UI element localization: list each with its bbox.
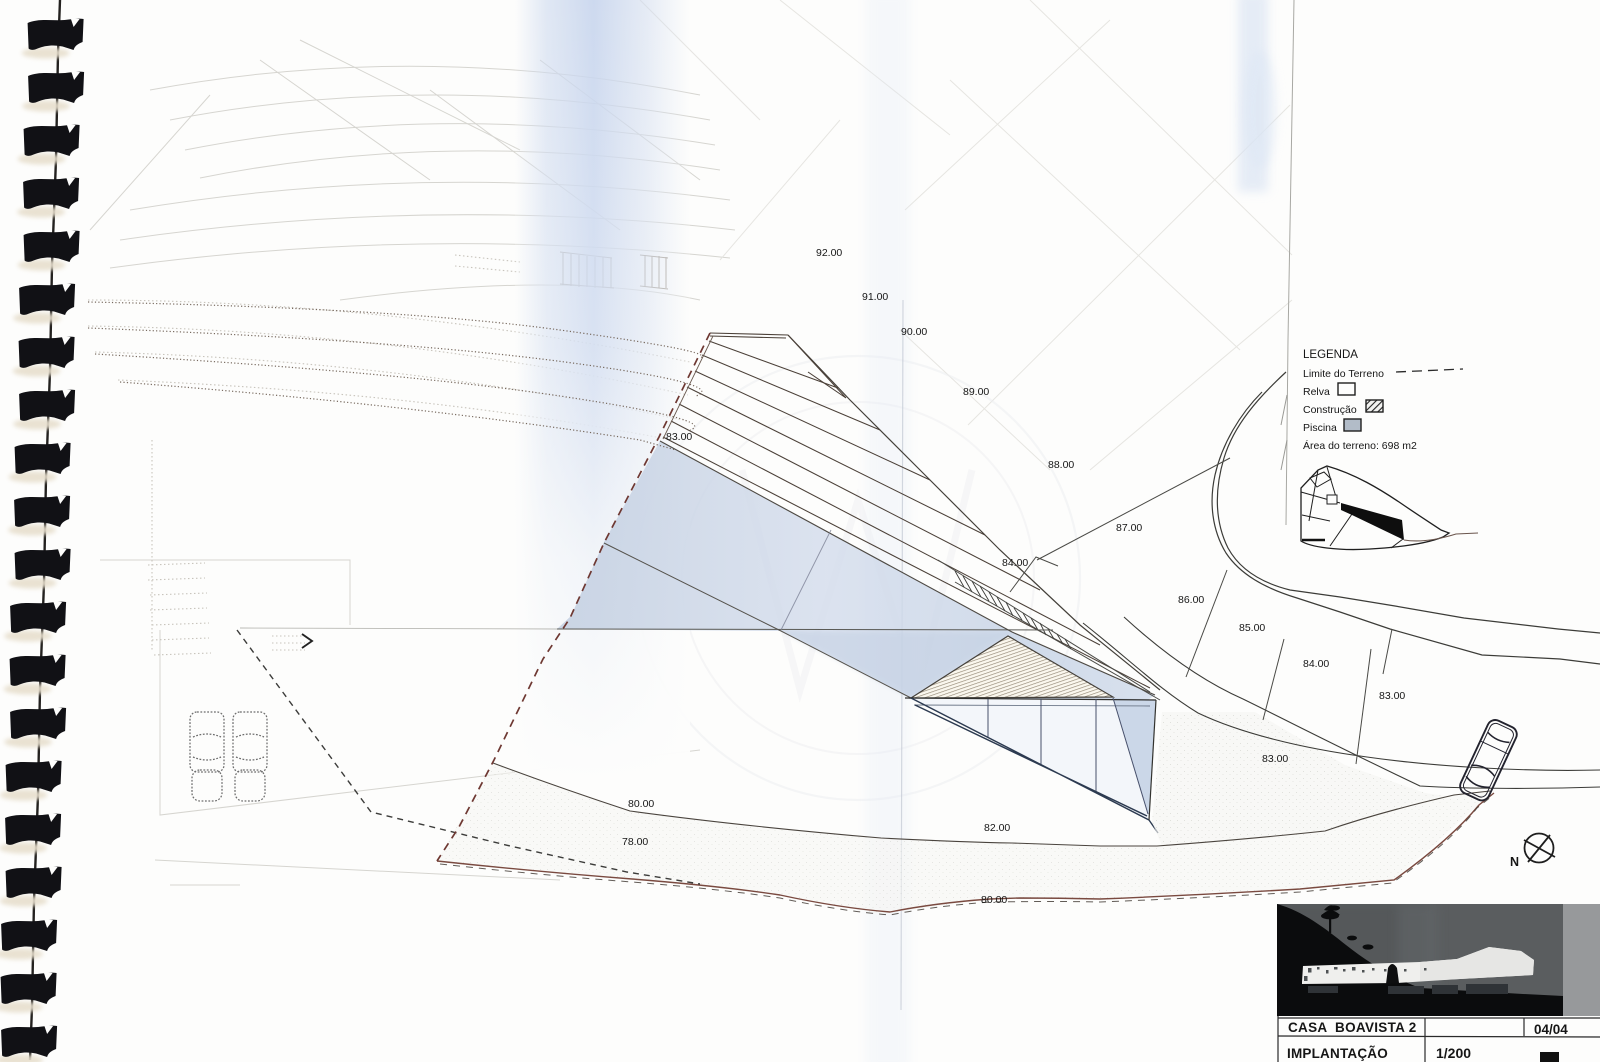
svg-text:LEGENDA: LEGENDA bbox=[1303, 349, 1358, 361]
svg-text:88.00: 88.00 bbox=[1048, 459, 1074, 471]
svg-text:04/04: 04/04 bbox=[1534, 1022, 1568, 1037]
svg-text:89.00: 89.00 bbox=[963, 386, 989, 398]
svg-text:84.00: 84.00 bbox=[1002, 557, 1028, 569]
svg-text:IMPLANTAÇÃO: IMPLANTAÇÃO bbox=[1287, 1046, 1388, 1061]
svg-text:Construção: Construção bbox=[1303, 404, 1357, 416]
svg-text:78.00: 78.00 bbox=[622, 836, 648, 848]
svg-text:Relva: Relva bbox=[1303, 386, 1330, 398]
svg-text:N: N bbox=[1510, 855, 1519, 869]
svg-text:87.00: 87.00 bbox=[1116, 522, 1142, 534]
svg-text:CASA BOAVISTA 2: CASA BOAVISTA 2 bbox=[1288, 1020, 1417, 1035]
svg-text:Área do terreno: 698 m2: Área do terreno: 698 m2 bbox=[1303, 439, 1417, 452]
svg-text:82.00: 82.00 bbox=[984, 822, 1010, 834]
svg-text:80.00: 80.00 bbox=[981, 894, 1007, 906]
svg-text:86.00: 86.00 bbox=[1178, 594, 1204, 606]
svg-text:1/200: 1/200 bbox=[1436, 1045, 1471, 1061]
svg-text:80.00: 80.00 bbox=[628, 798, 654, 810]
svg-text:83.00: 83.00 bbox=[1262, 753, 1288, 765]
svg-text:90.00: 90.00 bbox=[901, 326, 927, 338]
svg-text:83.00: 83.00 bbox=[666, 431, 692, 443]
svg-text:84.00: 84.00 bbox=[1303, 658, 1329, 670]
svg-text:83.00: 83.00 bbox=[1379, 690, 1405, 702]
svg-text:92.00: 92.00 bbox=[816, 247, 842, 259]
svg-text:85.00: 85.00 bbox=[1239, 622, 1265, 634]
svg-text:Limite do Terreno: Limite do Terreno bbox=[1303, 368, 1384, 380]
svg-text:Piscina: Piscina bbox=[1303, 422, 1337, 434]
svg-text:91.00: 91.00 bbox=[862, 291, 888, 303]
